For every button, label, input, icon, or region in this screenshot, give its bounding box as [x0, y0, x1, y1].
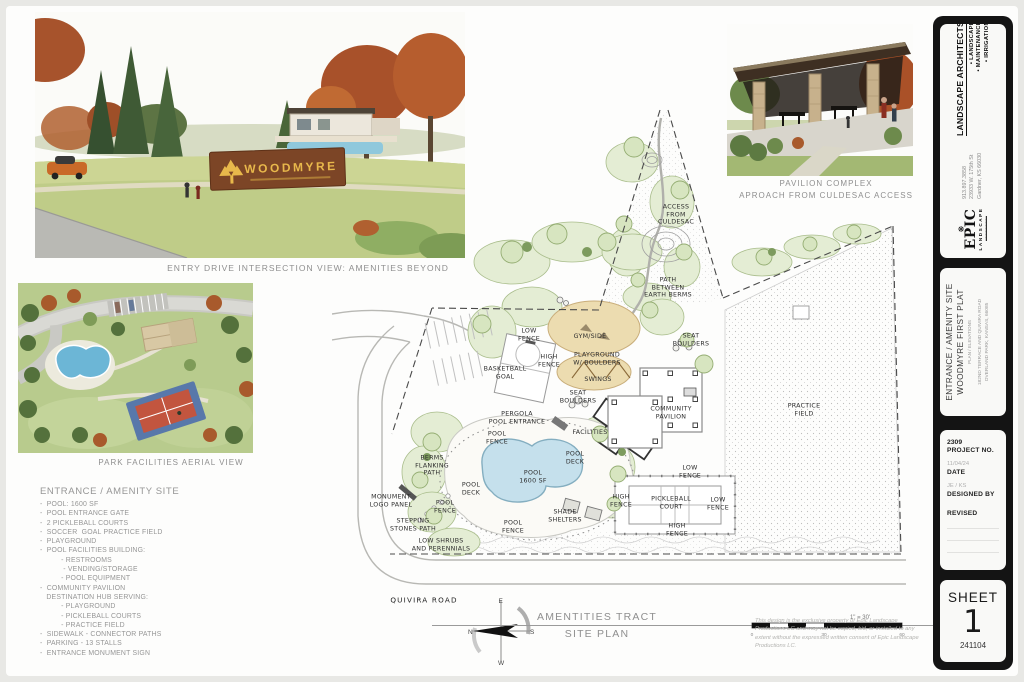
- sheet-label: SHEET: [940, 590, 1006, 605]
- plan-label: BASKETBALL GOAL: [484, 365, 527, 380]
- svg-text:E: E: [499, 598, 504, 605]
- plan-label: SHADE SHELTERS: [548, 508, 582, 523]
- firm-name: LANDSCAPE ARCHITECTS: [955, 24, 967, 136]
- plan-label: POOL 1600 SF: [519, 469, 546, 484]
- quivira-road-label: QUIVIRA ROAD: [390, 597, 457, 606]
- amenity-list-title: ENTRANCE / AMENITY SITE: [40, 486, 179, 497]
- amenity-list: ENTRANCE / AMENITY SITE - POOL: 1600 SF …: [40, 486, 179, 658]
- plan-label: LOW FENCE: [518, 327, 540, 342]
- firm-address-1: 23933 W. 175th St: [969, 141, 977, 199]
- epic-logo: ❋ EPIC LANDSCAPE ▬▬▬▬▬▬▬▬: [959, 204, 988, 254]
- plan-label: SEAT BOULDERS: [673, 332, 709, 347]
- date-value: 11/04/24: [947, 460, 999, 469]
- woodmyre-monument-sign: WOODMYRE: [209, 148, 345, 191]
- meta-box: 2309 PROJECT NO. 11/04/24 DATE JE / KS D…: [940, 430, 1006, 570]
- plan-label: HIGH FENCE: [538, 353, 560, 368]
- sheet-number: 1: [940, 605, 1006, 639]
- project-title-2: WOODMYRE FIRST PLAT: [955, 271, 966, 413]
- drawing-sheet: WOODMYRE ENTRY DRIVE INTERSECTION VIEW: …: [0, 0, 1024, 682]
- designed-label: DESIGNED BY: [947, 491, 999, 498]
- project-no-value: 2309: [947, 438, 999, 447]
- plan-label: POOL DECK: [462, 481, 480, 496]
- sheet-box: SHEET 1 241104: [940, 580, 1006, 662]
- plan-label: POOL FENCE: [502, 519, 524, 534]
- plan-label: GYM/SIDE: [574, 333, 607, 341]
- plan-label: LOW FENCE: [707, 496, 729, 511]
- project-subtitle: PLAN / ELEVATIONS: [966, 271, 973, 413]
- plan-label: PICKLEBALL COURT: [651, 495, 691, 510]
- plan-label: MONUMENT LOGO PANEL: [370, 493, 412, 508]
- aerial-pool: [56, 345, 111, 378]
- designed-value: JE / KS: [947, 482, 999, 491]
- project-title-1: ENTRANCE / AMENITY SITE: [944, 271, 955, 413]
- plan-label: LOW SHRUBS AND PERENNIALS: [412, 537, 471, 552]
- service-1: • LANDSCAPE: [969, 24, 976, 136]
- revised-label: REVISED: [947, 510, 999, 517]
- plan-label: PLAYGROUND W/ BOULDERS: [573, 351, 621, 366]
- svg-text:0: 0: [751, 632, 754, 638]
- sheet-code: 241104: [940, 641, 1006, 650]
- firm-contact: 913.897.3858 23933 W. 175th St Gardner, …: [962, 141, 985, 199]
- project-box: ENTRANCE / AMENITY SITE WOODMYRE FIRST P…: [940, 268, 1006, 416]
- plan-label: SWINGS: [584, 376, 611, 384]
- service-2: • MAINTENANCE: [976, 24, 983, 136]
- copyright-notice: This design is the exclusive property of…: [755, 617, 923, 651]
- amenity-list-body: - POOL: 1600 SF - POOL ENTRANCE GATE - 2…: [40, 500, 179, 658]
- plan-label: FACILITIES: [572, 429, 607, 437]
- service-3: • IRRIGATION: [984, 24, 991, 136]
- plan-label: PERGOLA POOL ENTRANCE: [489, 410, 546, 425]
- practice-field-area: [725, 228, 900, 552]
- plan-label: PRACTICE FIELD: [788, 402, 821, 417]
- plan-label: POOL FENCE: [486, 430, 508, 445]
- firm-name-block: LANDSCAPE ARCHITECTS • LANDSCAPE • MAINT…: [955, 24, 991, 136]
- plan-label: PATH BETWEEN EARTH BERMS: [644, 276, 692, 299]
- tract-title: AMENTITIES TRACT: [487, 611, 707, 623]
- plan-label: POOL DECK: [566, 450, 584, 465]
- project-address-2: OVERLAND PARK, KANSAS, 66085: [985, 271, 992, 413]
- firm-phone: 913.897.3858: [962, 141, 970, 199]
- svg-text:W: W: [498, 660, 505, 666]
- plan-label: HIGH FENCE: [666, 522, 688, 537]
- plan-label: SEAT BOULDERS: [560, 389, 596, 404]
- project-no-label: PROJECT NO.: [947, 447, 999, 454]
- aerial-view-rendering: [18, 283, 253, 458]
- plan-label: BERMS FLANKING PATH: [415, 454, 449, 477]
- aerial-view-caption: PARK FACILITIES AERIAL VIEW: [98, 458, 243, 467]
- title-block: ❋ EPIC LANDSCAPE ▬▬▬▬▬▬▬▬ 913.897.3858 2…: [933, 16, 1013, 670]
- plan-label: POOL FENCE: [434, 499, 456, 514]
- plan-label: LOW FENCE: [679, 464, 701, 479]
- tract-subtitle: SITE PLAN: [487, 628, 707, 640]
- plan-label: ACCESS FROM CULDESAC: [658, 203, 694, 226]
- firm-box: ❋ EPIC LANDSCAPE ▬▬▬▬▬▬▬▬ 913.897.3858 2…: [940, 24, 1006, 258]
- firm-address-2: Gardner, KS 66030: [977, 141, 985, 199]
- plan-label: STEPPING STONES PATH: [390, 517, 436, 532]
- date-label: DATE: [947, 469, 999, 476]
- plan-label: COMMUNITY PAVILION: [650, 405, 691, 420]
- plan-label: HIGH FENCE: [610, 493, 632, 508]
